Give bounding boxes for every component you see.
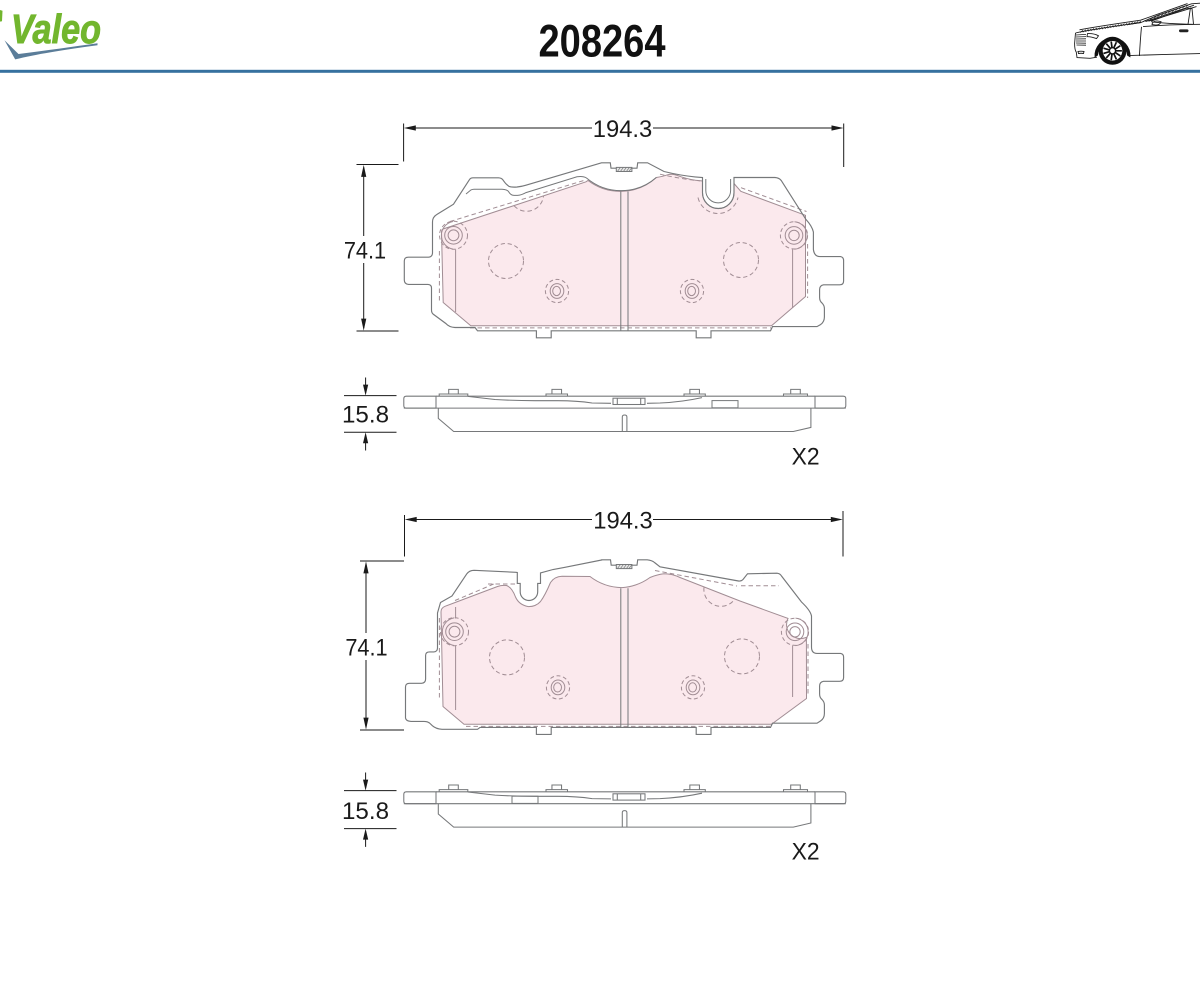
svg-text:208264: 208264 [539,16,666,67]
svg-text:X2: X2 [792,839,820,866]
svg-text:15.8: 15.8 [342,401,389,428]
svg-text:X2: X2 [792,443,820,470]
svg-text:194.3: 194.3 [593,507,653,534]
svg-text:74.1: 74.1 [344,237,386,264]
svg-text:194.3: 194.3 [593,116,653,143]
svg-text:15.8: 15.8 [342,798,389,825]
svg-text:74.1: 74.1 [345,634,387,661]
